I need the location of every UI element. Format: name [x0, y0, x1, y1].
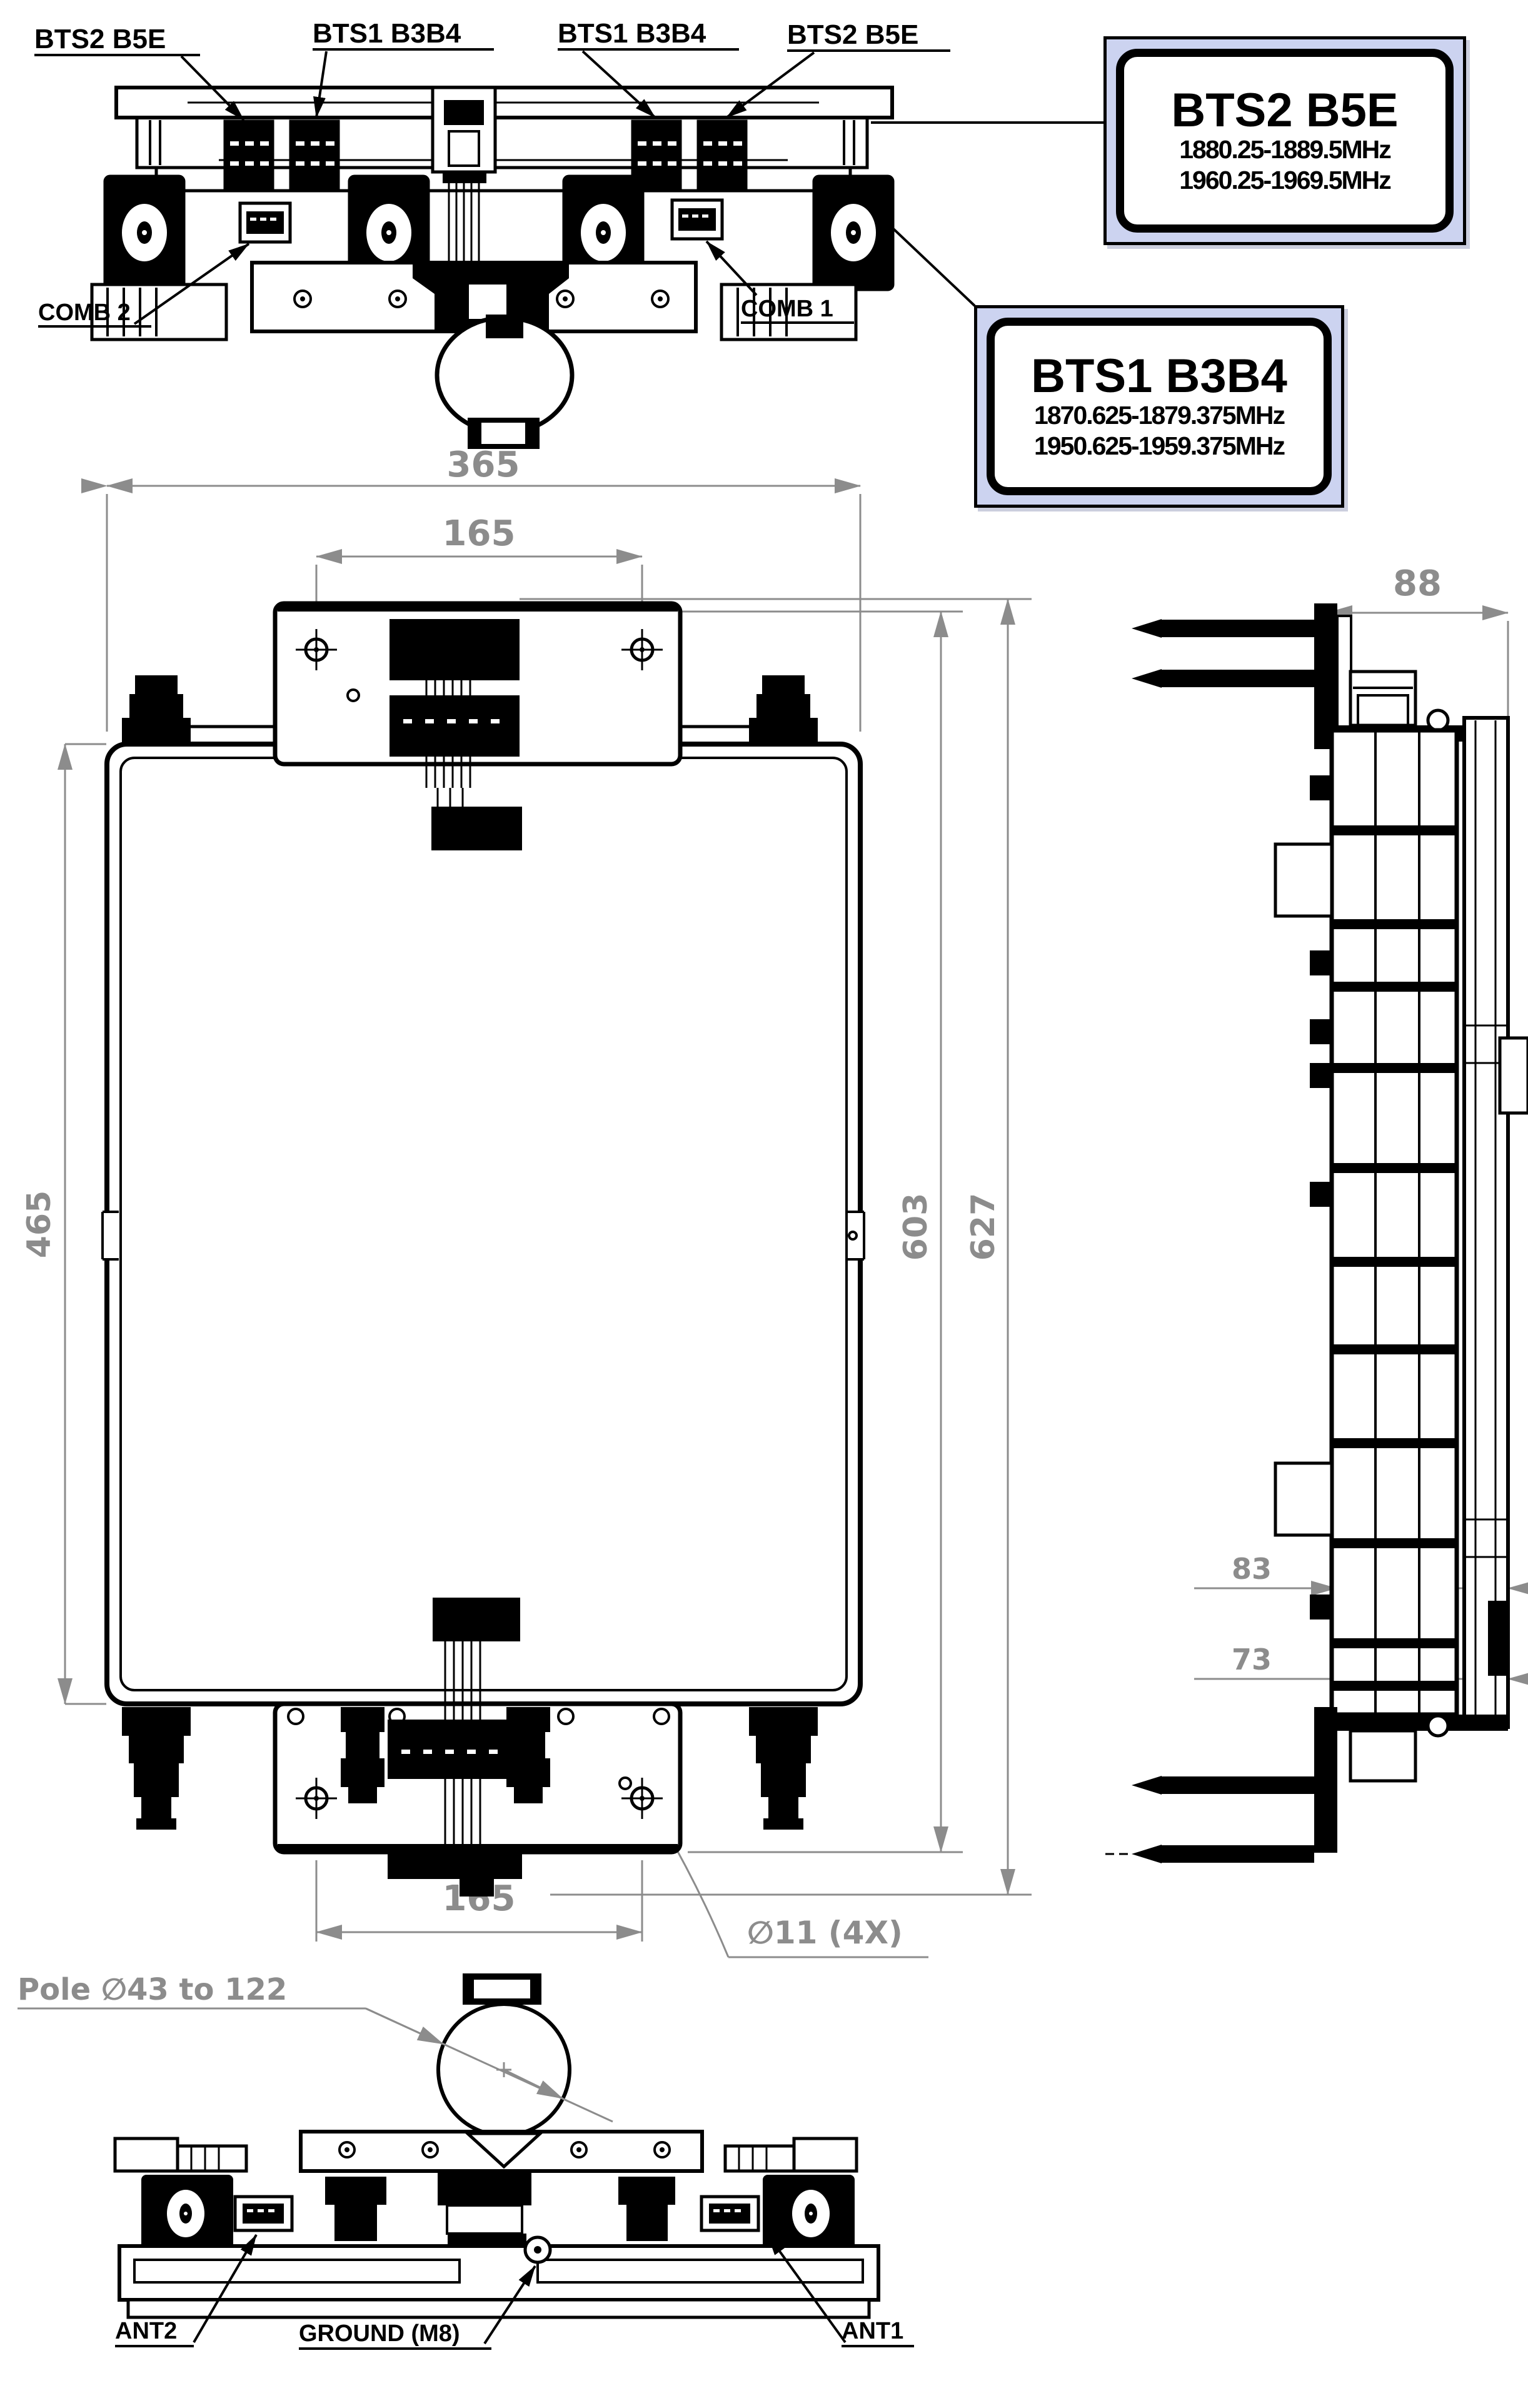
- top-view-drawing: BTS2 B5E BTS1 B3B4 BTS1 B3B4 BTS2 B5E CO…: [31, 13, 1119, 450]
- callout-comb1: COMB 1: [741, 296, 833, 322]
- pole-section: Pole ∅43 to 122: [18, 1972, 613, 2135]
- label-box-bts2-freq1: 1880.25-1889.5MHz: [1179, 134, 1390, 164]
- label-box-bts1-title: BTS1 B3B4: [1031, 352, 1287, 401]
- callout-pole-range: Pole ∅43 to 122: [18, 1972, 287, 2007]
- drawing-canvas: BTS2 B5E BTS1 B3B4 BTS1 B3B4 BTS2 B5E CO…: [0, 0, 1528, 2408]
- label-box-bts1-freq1: 1870.625-1879.375MHz: [1034, 400, 1284, 430]
- dim-overall-width: 365: [447, 445, 520, 485]
- dim-upper-offset: 83: [1232, 1552, 1272, 1586]
- front-view-device: [100, 603, 867, 1897]
- dim-top-hole-spacing: 165: [443, 513, 516, 554]
- dim-depth: 88: [1393, 563, 1442, 604]
- callout-mount-hole: ∅11 (4X): [747, 1915, 903, 1951]
- label-box-bts2-title: BTS2 B5E: [1171, 86, 1398, 135]
- callout-bts1-right: BTS1 B3B4: [558, 18, 706, 49]
- bottom-view-drawing: Pole ∅43 to 122: [13, 1963, 950, 2408]
- dim-bracket-span: 603: [897, 1193, 935, 1261]
- callout-bts2-left: BTS2 B5E: [34, 24, 166, 54]
- label-box-bts2-inner: BTS2 B5E 1880.25-1889.5MHz 1960.25-1969.…: [1116, 49, 1454, 233]
- clamp-bolts-top: [1132, 603, 1337, 749]
- comb-id-plates: [240, 200, 722, 242]
- pole-clamp: [437, 315, 572, 449]
- dim-body-height: 465: [21, 1191, 58, 1259]
- mount-bar: [252, 263, 696, 331]
- label-box-bts2-freq2: 1960.25-1969.5MHz: [1179, 165, 1390, 195]
- front-view-drawing: 365 165 465 603 627 165 ∅11 (4X): [13, 438, 1075, 1976]
- mount-plate: [1464, 718, 1528, 1727]
- callout-bts2-right: BTS2 B5E: [787, 19, 918, 50]
- label-box-bts2: BTS2 B5E 1880.25-1889.5MHz 1960.25-1969.…: [1103, 36, 1466, 245]
- callout-bts1-left: BTS1 B3B4: [313, 18, 461, 49]
- dim-lower-offset: 73: [1232, 1643, 1272, 1676]
- side-view-device: [1105, 603, 1528, 1863]
- side-view-drawing: 88 83 73: [1088, 519, 1528, 1976]
- callout-ant2: ANT2: [115, 2318, 177, 2344]
- clamp-bolts-bottom: [1132, 1776, 1314, 1863]
- callout-ground: GROUND (M8): [299, 2320, 460, 2347]
- bottom-view-device: [115, 2132, 878, 2317]
- dim-overall-height: 627: [965, 1193, 1002, 1261]
- callout-comb2: COMB 2: [38, 300, 131, 326]
- callout-ant1: ANT1: [842, 2318, 903, 2344]
